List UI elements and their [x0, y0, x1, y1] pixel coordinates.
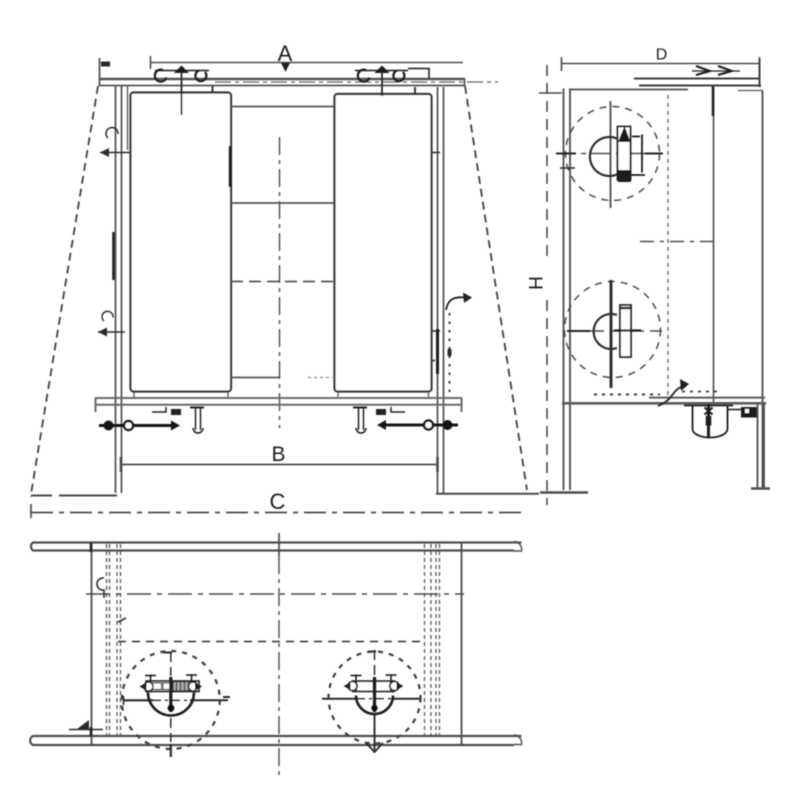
- svg-text:B: B: [271, 443, 285, 466]
- svg-text:D: D: [656, 47, 668, 64]
- svg-text:H: H: [527, 276, 548, 290]
- svg-text:A: A: [278, 41, 293, 66]
- svg-text:C: C: [270, 489, 286, 514]
